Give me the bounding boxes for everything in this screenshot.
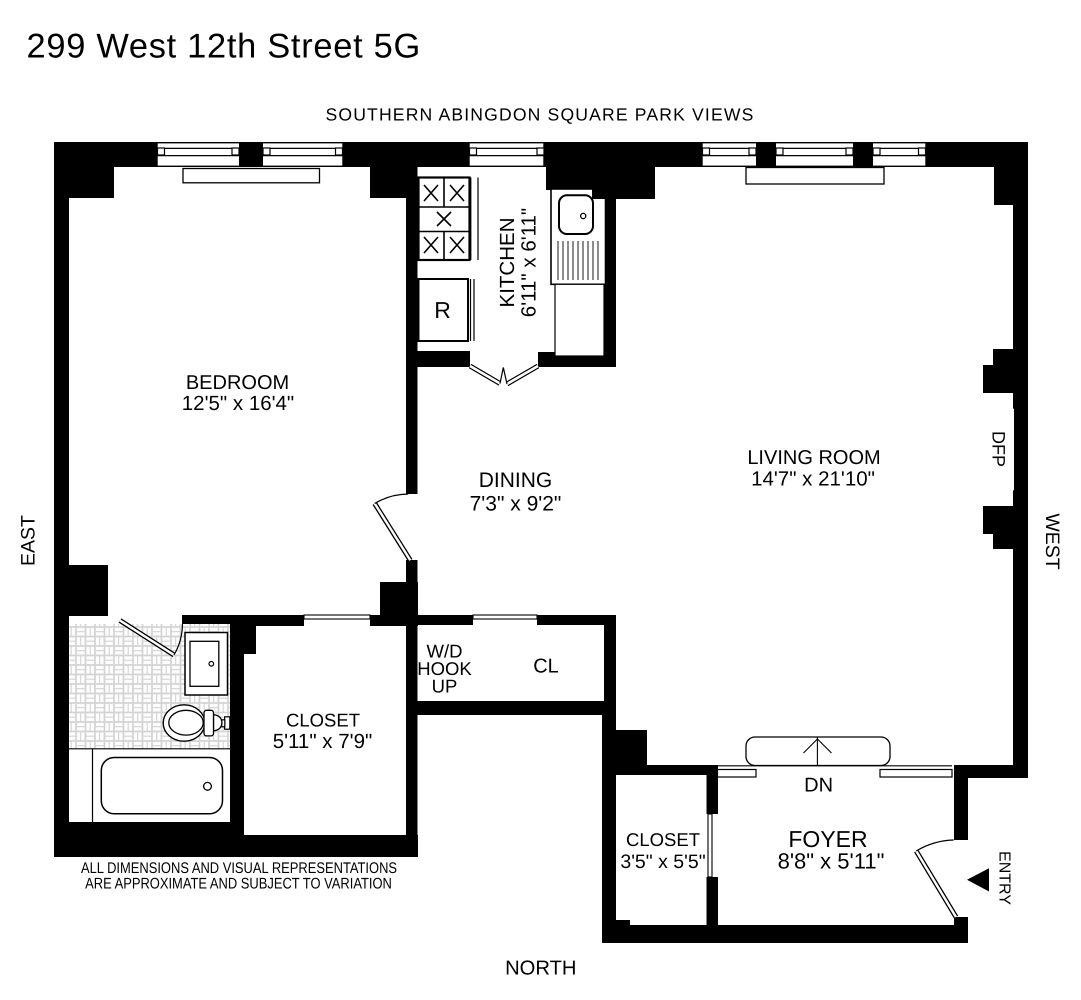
svg-text:ENTRY: ENTRY (996, 851, 1013, 905)
svg-text:5'11" x 7'9": 5'11" x 7'9" (273, 730, 373, 753)
svg-text:DINING: DINING (479, 469, 553, 492)
svg-text:14'7" x 21'10": 14'7" x 21'10" (751, 468, 875, 491)
svg-text:6'11" x 6'11": 6'11" x 6'11" (518, 208, 541, 317)
svg-text:NORTH: NORTH (505, 958, 576, 980)
svg-text:R: R (434, 297, 451, 323)
svg-text:CLOSET: CLOSET (286, 710, 360, 731)
svg-text:BEDROOM: BEDROOM (186, 372, 289, 394)
svg-text:DFP: DFP (989, 431, 1009, 467)
svg-text:8'8" x 5'11": 8'8" x 5'11" (778, 849, 885, 874)
svg-text:WEST: WEST (1041, 513, 1063, 569)
svg-text:UP: UP (432, 676, 458, 697)
svg-text:3'5" x 5'5": 3'5" x 5'5" (620, 851, 705, 873)
svg-text:CLOSET: CLOSET (626, 829, 700, 850)
svg-text:LIVING ROOM: LIVING ROOM (747, 447, 880, 469)
svg-text:DN: DN (804, 775, 833, 797)
svg-text:12'5" x 16'4": 12'5" x 16'4" (182, 392, 294, 415)
svg-text:KITCHEN: KITCHEN (496, 218, 519, 308)
svg-text:SOUTHERN ABINGDON SQUARE PARK: SOUTHERN ABINGDON SQUARE PARK VIEWS (325, 105, 754, 125)
svg-text:EAST: EAST (18, 515, 40, 566)
svg-text:299 West 12th Street 5G: 299 West 12th Street 5G (27, 28, 421, 66)
svg-text:7'3" x 9'2": 7'3" x 9'2" (470, 493, 562, 516)
svg-text:ARE APPROXIMATE AND SUBJECT TO: ARE APPROXIMATE AND SUBJECT TO VARIATION (85, 876, 392, 893)
svg-text:CL: CL (533, 656, 559, 678)
